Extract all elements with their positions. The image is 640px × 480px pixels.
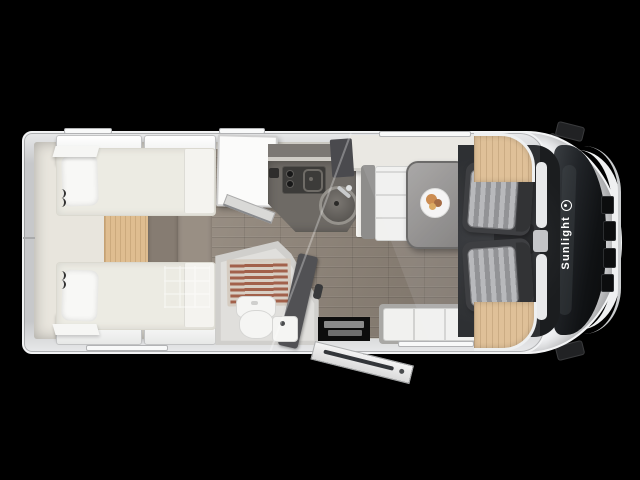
bed-ladder — [164, 266, 210, 308]
bed-step-upper — [178, 210, 212, 265]
hob-knob — [286, 180, 294, 188]
brand-text: Sunlight — [560, 216, 572, 270]
entry-door-handle — [399, 368, 405, 374]
rear-wall-divider — [23, 237, 35, 239]
toilet-bowl — [239, 310, 274, 339]
pillow-top-bed — [61, 154, 99, 206]
hob-burner — [303, 169, 323, 192]
window-slit — [398, 341, 474, 347]
entry-step — [324, 321, 364, 328]
corner-shelf-top — [52, 146, 99, 157]
sink-drain — [334, 201, 339, 206]
hob-knob — [286, 170, 294, 178]
front-grille-slat — [603, 221, 616, 241]
scene-motorhome-floorplan: Sunlight — [0, 0, 640, 480]
window-slit — [64, 128, 112, 134]
window-slit — [86, 345, 168, 351]
front-grille-slat — [603, 248, 616, 268]
sunlight-logo-icon — [561, 200, 572, 211]
pillow-bottom-bed — [61, 269, 99, 321]
bedding-foot-top — [184, 149, 214, 213]
reading-lamp-icon — [58, 271, 66, 289]
reading-lamp-icon — [58, 189, 66, 207]
front-grille-slat — [601, 274, 614, 292]
toilet-flush-button — [251, 301, 258, 305]
bed-step-birch — [104, 210, 150, 265]
front-grille-slat — [601, 196, 614, 214]
window-slit — [219, 128, 265, 134]
bed-step-lower — [148, 210, 178, 265]
brand-logo: Sunlight — [553, 200, 579, 280]
faucet-base — [346, 185, 352, 191]
entry-step — [328, 330, 362, 336]
corner-shelf-bottom — [52, 324, 99, 335]
window-slit — [379, 131, 471, 137]
power-socket — [269, 168, 279, 178]
hob-burner-center — [309, 177, 313, 181]
